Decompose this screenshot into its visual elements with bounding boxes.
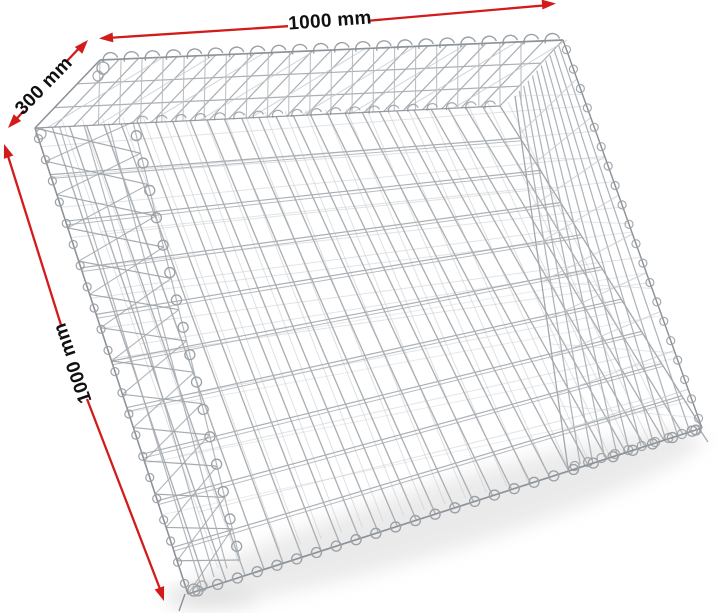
- mesh-right-strip: [515, 40, 702, 471]
- gabion-product-image: 1000 mm 300 mm 1000 mm: [0, 0, 720, 613]
- gabion-mesh-illustration: [0, 0, 720, 613]
